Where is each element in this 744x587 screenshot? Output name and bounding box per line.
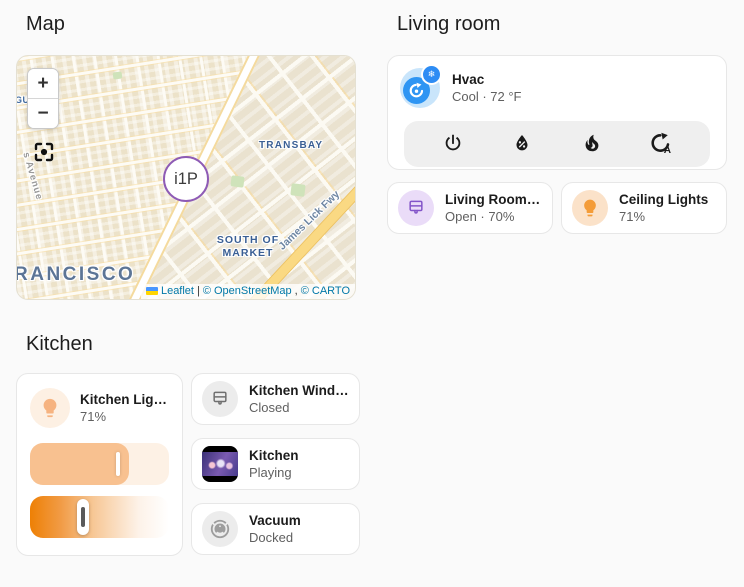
crosshair-locate-icon xyxy=(32,152,56,167)
vacuum-name: Vacuum xyxy=(249,513,301,528)
fire-icon xyxy=(581,132,603,157)
map-label-south-of-market-line2: MARKET xyxy=(183,247,313,260)
map[interactable]: GU s Avenue TRANSBAY SOUTH OF MARKET Jam… xyxy=(16,55,356,300)
kitchen-window-name: Kitchen Wind… xyxy=(249,383,349,398)
zoom-in-button[interactable]: + xyxy=(28,69,58,98)
lightbulb-icon[interactable] xyxy=(572,190,608,226)
kitchen-lights-text: Kitchen Lights 71% xyxy=(80,392,169,424)
recenter-button[interactable] xyxy=(31,140,57,166)
hvac-mode-dry-button[interactable] xyxy=(502,124,542,164)
hvac-header: ❄ Hvac Cool · 72 °F xyxy=(400,68,714,108)
kitchen-window-card[interactable]: Kitchen Wind… Closed xyxy=(191,373,360,425)
hvac-mode-auto-button[interactable]: A xyxy=(641,124,681,164)
hvac-mode-row: A xyxy=(404,121,710,167)
kitchen-media-player-card[interactable]: Kitchen Playing xyxy=(191,438,360,490)
ceiling-lights-name: Ceiling Lights xyxy=(619,192,708,207)
brightness-slider-fill xyxy=(30,443,129,485)
ceiling-lights-status: 71% xyxy=(619,209,708,224)
kitchen-lights-name: Kitchen Lights xyxy=(80,392,169,407)
map-attribution: Leaflet|© OpenStreetMap,© CARTO xyxy=(141,284,355,299)
kitchen-window-text: Kitchen Wind… Closed xyxy=(249,383,349,415)
svg-text:A: A xyxy=(664,145,672,154)
thermostat-auto-icon: A xyxy=(650,132,672,157)
roller-shade-icon[interactable] xyxy=(398,190,434,226)
ceiling-lights-card[interactable]: Ceiling Lights 71% xyxy=(561,182,727,234)
map-park-patch xyxy=(113,71,123,79)
hvac-card[interactable]: ❄ Hvac Cool · 72 °F xyxy=(387,55,727,170)
living-room-card-row: Living Room … Open · 70% Ceiling Lights … xyxy=(387,182,727,234)
vacuum-card[interactable]: Vacuum Docked xyxy=(191,503,360,555)
map-label-city: RANCISCO xyxy=(16,264,135,286)
ukraine-flag-icon xyxy=(146,287,158,295)
map-park-patch xyxy=(290,183,305,197)
map-zoom-control: + − xyxy=(27,68,59,129)
map-park-patch xyxy=(230,175,244,188)
vacuum-status: Docked xyxy=(249,530,301,545)
kitchen-lights-header: Kitchen Lights 71% xyxy=(30,388,169,428)
water-percent-icon xyxy=(511,132,533,157)
zoom-out-button[interactable]: − xyxy=(28,99,58,128)
right-column: Living room ❄ Hvac Cool · 72 °F xyxy=(387,0,727,234)
map-person-marker[interactable]: i1P xyxy=(163,156,209,202)
kitchen-window-status: Closed xyxy=(249,400,349,415)
living-room-shade-name: Living Room … xyxy=(445,192,542,207)
ceiling-lights-text: Ceiling Lights 71% xyxy=(619,192,708,224)
hvac-mode-heat-button[interactable] xyxy=(572,124,612,164)
vacuum-text: Vacuum Docked xyxy=(249,513,301,545)
left-column: Map GU s Avenue TRANSBAY SOUTH OF MARKET… xyxy=(16,0,356,556)
robot-vacuum-icon[interactable] xyxy=(202,511,238,547)
kitchen-section-title: Kitchen xyxy=(26,330,356,358)
living-room-shade-status: Open · 70% xyxy=(445,209,542,224)
roller-shade-icon[interactable] xyxy=(202,381,238,417)
attribution-separator: | xyxy=(197,285,200,297)
hvac-text: Hvac Cool · 72 °F xyxy=(452,72,522,104)
kitchen-lights-card[interactable]: Kitchen Lights 71% xyxy=(16,373,183,556)
hvac-mode-off-button[interactable] xyxy=(433,124,473,164)
leaflet-link[interactable]: Leaflet xyxy=(161,285,194,297)
living-room-shade-card[interactable]: Living Room … Open · 70% xyxy=(387,182,553,234)
kitchen-media-text: Kitchen Playing xyxy=(249,448,299,480)
living-room-section-title: Living room xyxy=(397,10,727,38)
lightbulb-icon[interactable] xyxy=(30,388,70,428)
media-album-art[interactable] xyxy=(202,446,238,482)
thermostat-icon[interactable]: ❄ xyxy=(400,68,440,108)
kitchen-lights-status: 71% xyxy=(80,409,169,424)
brightness-slider-handle[interactable] xyxy=(116,452,120,476)
hvac-status: Cool · 72 °F xyxy=(452,89,522,104)
hvac-name: Hvac xyxy=(452,72,522,87)
carto-link[interactable]: © CARTO xyxy=(301,285,350,297)
media-album-art-image xyxy=(202,452,238,476)
map-section-title: Map xyxy=(26,10,356,38)
kitchen-card-grid: Kitchen Lights 71% Kitchen Wind… xyxy=(16,373,356,556)
openstreetmap-link[interactable]: © OpenStreetMap xyxy=(203,285,292,297)
kitchen-media-name: Kitchen xyxy=(249,448,299,463)
kitchen-media-status: Playing xyxy=(249,465,299,480)
attribution-comma: , xyxy=(295,285,298,297)
color-temperature-slider-handle[interactable] xyxy=(77,499,89,535)
snowflake-badge-icon: ❄ xyxy=(421,64,442,85)
brightness-slider[interactable] xyxy=(30,443,169,485)
living-room-shade-text: Living Room … Open · 70% xyxy=(445,192,542,224)
map-label-transbay: TRANSBAY xyxy=(259,140,323,151)
color-temperature-slider[interactable] xyxy=(30,496,169,538)
kitchen-right-stack: Kitchen Wind… Closed Kitchen Playing xyxy=(191,373,360,556)
power-icon xyxy=(442,132,464,157)
